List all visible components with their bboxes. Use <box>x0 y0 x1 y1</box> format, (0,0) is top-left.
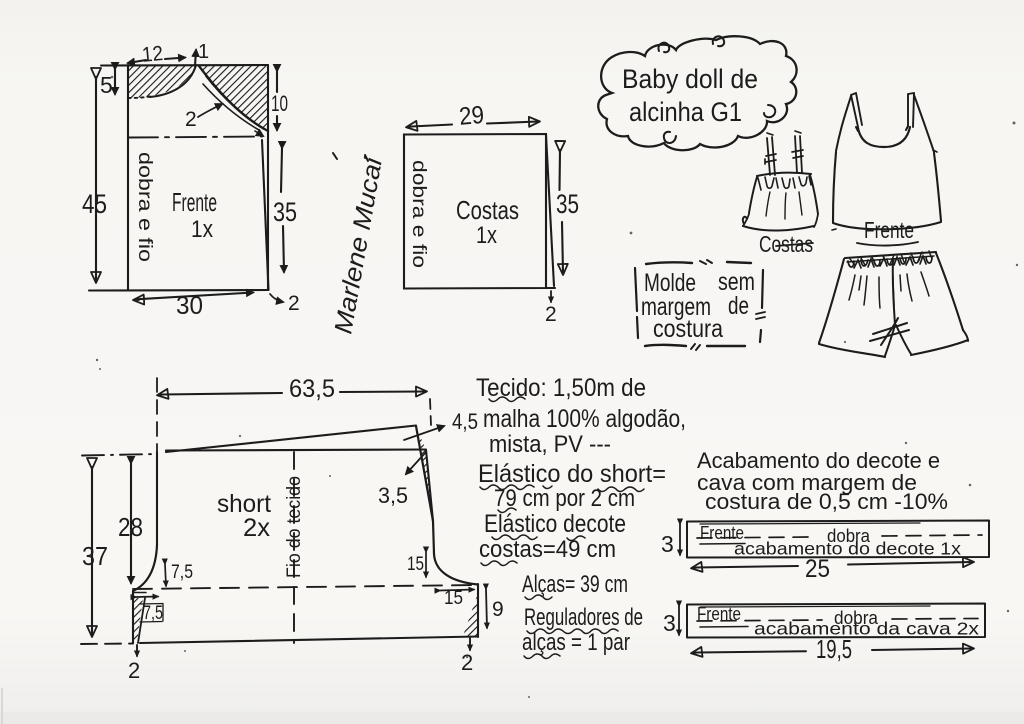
svg-text:4,5: 4,5 <box>452 409 478 434</box>
svg-text:12: 12 <box>141 42 164 67</box>
svg-text:2: 2 <box>545 303 557 326</box>
svg-text:2: 2 <box>185 108 197 131</box>
svg-text:29: 29 <box>458 101 485 131</box>
svg-text:alças = 1 par: alças = 1 par <box>522 629 630 656</box>
svg-text:30: 30 <box>176 292 203 320</box>
svg-text:Reguladores de: Reguladores de <box>524 604 643 631</box>
svg-text:acabamento da cava 2x: acabamento da cava 2x <box>754 619 979 639</box>
svg-text:alcinha G1: alcinha G1 <box>629 97 742 127</box>
svg-text:Frente: Frente <box>864 217 914 243</box>
svg-text:19,5: 19,5 <box>816 634 852 664</box>
svg-text:2: 2 <box>128 658 140 683</box>
svg-text:79 cm por 2 cm: 79 cm por 2 cm <box>494 485 635 512</box>
svg-text:Costas: Costas <box>456 195 519 225</box>
svg-text:dobra e fio: dobra e fio <box>134 152 155 262</box>
svg-text:dobra e fio: dobra e fio <box>408 160 429 268</box>
svg-text:35: 35 <box>273 197 297 227</box>
svg-text:35: 35 <box>556 189 579 219</box>
svg-text:15: 15 <box>444 588 463 609</box>
svg-text:5: 5 <box>100 72 113 98</box>
svg-text:costas=49 cm: costas=49 cm <box>479 536 616 563</box>
svg-text:Fio do tecido: Fio do tecido <box>284 476 305 578</box>
svg-text:3: 3 <box>661 531 674 557</box>
svg-text:2x: 2x <box>243 514 271 542</box>
svg-text:Frente: Frente <box>172 187 217 217</box>
svg-text:malha 100% algodão,: malha 100% algodão, <box>483 405 686 433</box>
svg-text:28: 28 <box>118 512 143 542</box>
svg-text:15: 15 <box>407 554 424 575</box>
svg-text:acabamento do decote 1x: acabamento do decote 1x <box>734 539 961 559</box>
svg-text:de: de <box>728 292 749 320</box>
svg-text:37: 37 <box>82 541 108 571</box>
svg-text:Frente: Frente <box>697 604 741 624</box>
svg-text:2: 2 <box>288 292 300 315</box>
svg-text:63,5: 63,5 <box>289 375 335 403</box>
svg-text:10: 10 <box>271 91 288 116</box>
svg-text:7,5: 7,5 <box>171 562 193 583</box>
svg-text:costura de 0,5 cm -10%: costura de 0,5 cm -10% <box>705 489 948 514</box>
svg-text:Elástico decote: Elástico decote <box>484 510 626 538</box>
svg-text:costura: costura <box>653 315 723 343</box>
svg-text:7,5: 7,5 <box>143 603 163 624</box>
svg-text:1x: 1x <box>191 216 213 243</box>
svg-text:9: 9 <box>492 598 504 621</box>
svg-text:Baby doll de: Baby doll de <box>622 64 758 94</box>
svg-text:Elástico do short=: Elástico do short= <box>478 460 666 488</box>
svg-text:3,5: 3,5 <box>378 483 408 508</box>
svg-text:1: 1 <box>198 41 209 63</box>
svg-text:2: 2 <box>461 650 473 675</box>
svg-text:Alças= 39 cm: Alças= 39 cm <box>522 571 628 598</box>
svg-text:3: 3 <box>663 610 676 636</box>
svg-text:mista, PV ---: mista, PV --- <box>489 431 611 458</box>
svg-text:25: 25 <box>805 555 830 583</box>
svg-text:45: 45 <box>82 189 107 219</box>
svg-text:1x: 1x <box>476 222 497 249</box>
